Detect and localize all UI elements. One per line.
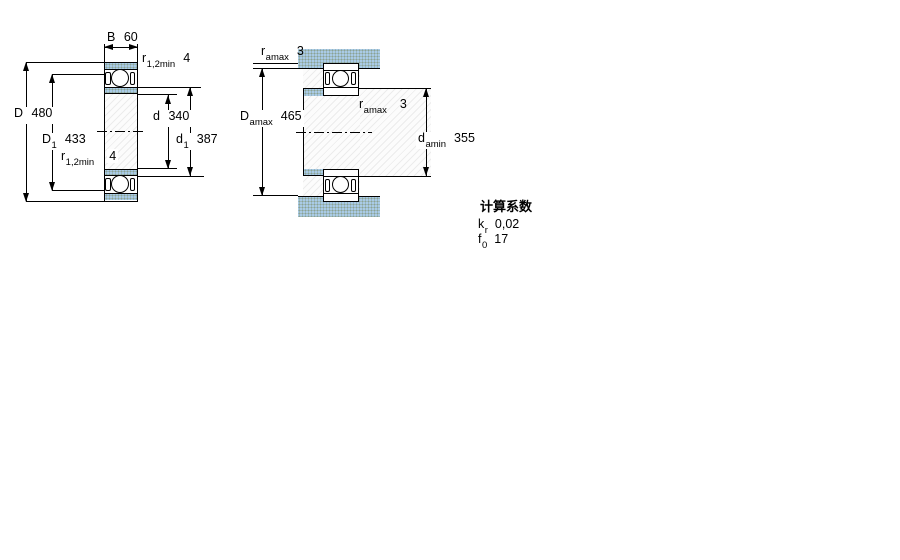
dim-value: 3 — [400, 97, 407, 111]
arrowhead-down — [49, 182, 55, 191]
dim-value: 355 — [454, 131, 475, 145]
raceway-shoulder — [325, 72, 331, 85]
arrowhead-up — [49, 74, 55, 83]
dim-value: 465 — [281, 109, 302, 123]
leader-line — [253, 63, 298, 64]
dim-label-d1: d1387 — [174, 133, 220, 150]
ball-element — [111, 69, 129, 87]
dim-subscript: amax — [364, 105, 387, 116]
dim-label-d: d340 — [151, 110, 191, 127]
dim-value: 4 — [107, 149, 118, 163]
dim-subscript: 1 — [183, 140, 188, 151]
bearing-technical-drawing: B60 r1,2min4 D480 D1433 r1,2min — [0, 0, 900, 560]
dimension-line-D — [26, 62, 27, 202]
ball-element — [111, 175, 129, 193]
dim-label-D: D480 — [12, 107, 54, 124]
raceway-shoulder — [130, 72, 136, 85]
dim-value: 3 — [297, 44, 304, 58]
bearing-section-mounted-top — [323, 63, 359, 96]
dim-subscript: amax — [266, 52, 289, 63]
factor-subscript: 0 — [482, 240, 487, 251]
arrowhead-down — [259, 187, 265, 196]
arrowhead-down — [165, 160, 171, 169]
dim-label-ra-top: ramax3 — [261, 45, 304, 62]
dim-symbol: D — [240, 109, 249, 123]
dim-symbol: r — [261, 44, 265, 58]
ball-element — [332, 176, 349, 193]
dim-label-B: B60 — [107, 31, 138, 48]
shaft-shoulder-bottom — [303, 169, 324, 177]
arrowhead-up — [423, 88, 429, 97]
dim-subscript: 1,2min — [66, 157, 95, 168]
raceway-shoulder — [105, 72, 111, 85]
factor-value: 17 — [494, 232, 508, 246]
raceway-shoulder — [351, 72, 357, 85]
factor-symbol: k — [478, 217, 484, 231]
arrowhead-up — [259, 68, 265, 77]
dim-subscript: amax — [250, 117, 273, 128]
ring-separator-line — [324, 87, 358, 88]
dim-value: 4 — [183, 51, 190, 65]
raceway-shoulder — [325, 179, 331, 192]
dim-symbol: D — [14, 106, 23, 120]
calculation-factors-title: 计算系数 — [480, 196, 532, 215]
dimension-line-d — [168, 95, 169, 169]
dim-symbol: r — [359, 97, 363, 111]
dim-label-D1: D1433 — [40, 133, 88, 150]
dim-symbol: d — [153, 109, 160, 123]
dim-symbol: d — [418, 131, 425, 145]
dim-value: 480 — [32, 106, 53, 120]
extension-line — [26, 62, 104, 63]
dim-symbol: d — [176, 132, 183, 146]
arrowhead-up — [23, 62, 29, 71]
arrowhead-down — [23, 193, 29, 202]
dim-value: 60 — [124, 30, 138, 44]
factor-row-f0: f017 — [478, 233, 508, 250]
dim-value: 387 — [197, 132, 218, 146]
factor-symbol: f — [478, 232, 481, 246]
centerline — [97, 131, 145, 132]
dim-symbol: B — [107, 30, 115, 44]
arrowhead-up — [187, 87, 193, 96]
extension-line — [52, 74, 104, 75]
dim-symbol: r — [142, 51, 146, 65]
outer-ring-band — [105, 193, 137, 200]
dimension-line-d1 — [190, 87, 191, 176]
raceway-shoulder — [351, 179, 357, 192]
dim-label-r12-top: r1,2min4 — [142, 52, 190, 69]
shaft-shoulder-top — [303, 88, 324, 96]
dim-symbol: r — [61, 149, 65, 163]
ring-separator-line — [324, 193, 358, 194]
extension-line — [52, 190, 104, 191]
dimension-line-Damax — [262, 68, 263, 196]
dim-subscript: 1 — [52, 140, 57, 151]
inner-ring-band — [105, 87, 137, 94]
arrowhead-down — [423, 167, 429, 176]
dim-subscript: 1,2min — [147, 59, 176, 70]
factor-value: 0,02 — [495, 217, 519, 231]
dim-symbol: D — [42, 132, 51, 146]
dim-label-damin: damin355 — [416, 132, 477, 149]
raceway-shoulder — [105, 178, 111, 191]
dim-value: 340 — [168, 109, 189, 123]
arrowhead-up — [165, 95, 171, 104]
ball-element — [332, 70, 349, 87]
dim-label-ra-mid: ramax3 — [359, 98, 407, 115]
dim-subscript: amin — [425, 139, 446, 150]
shaft-outline-line — [359, 176, 431, 177]
extension-line — [138, 176, 204, 177]
dim-label-Damax: Damax465 — [238, 110, 304, 127]
bearing-section-mounted-bottom — [323, 169, 359, 202]
raceway-shoulder — [130, 178, 136, 191]
dim-value: 433 — [65, 132, 86, 146]
arrowhead-down — [187, 167, 193, 176]
centerline — [296, 132, 372, 133]
extension-line — [26, 201, 104, 202]
shaft-outline-line — [359, 88, 431, 89]
dim-label-r12-mid: r1,2min4 — [61, 150, 118, 167]
